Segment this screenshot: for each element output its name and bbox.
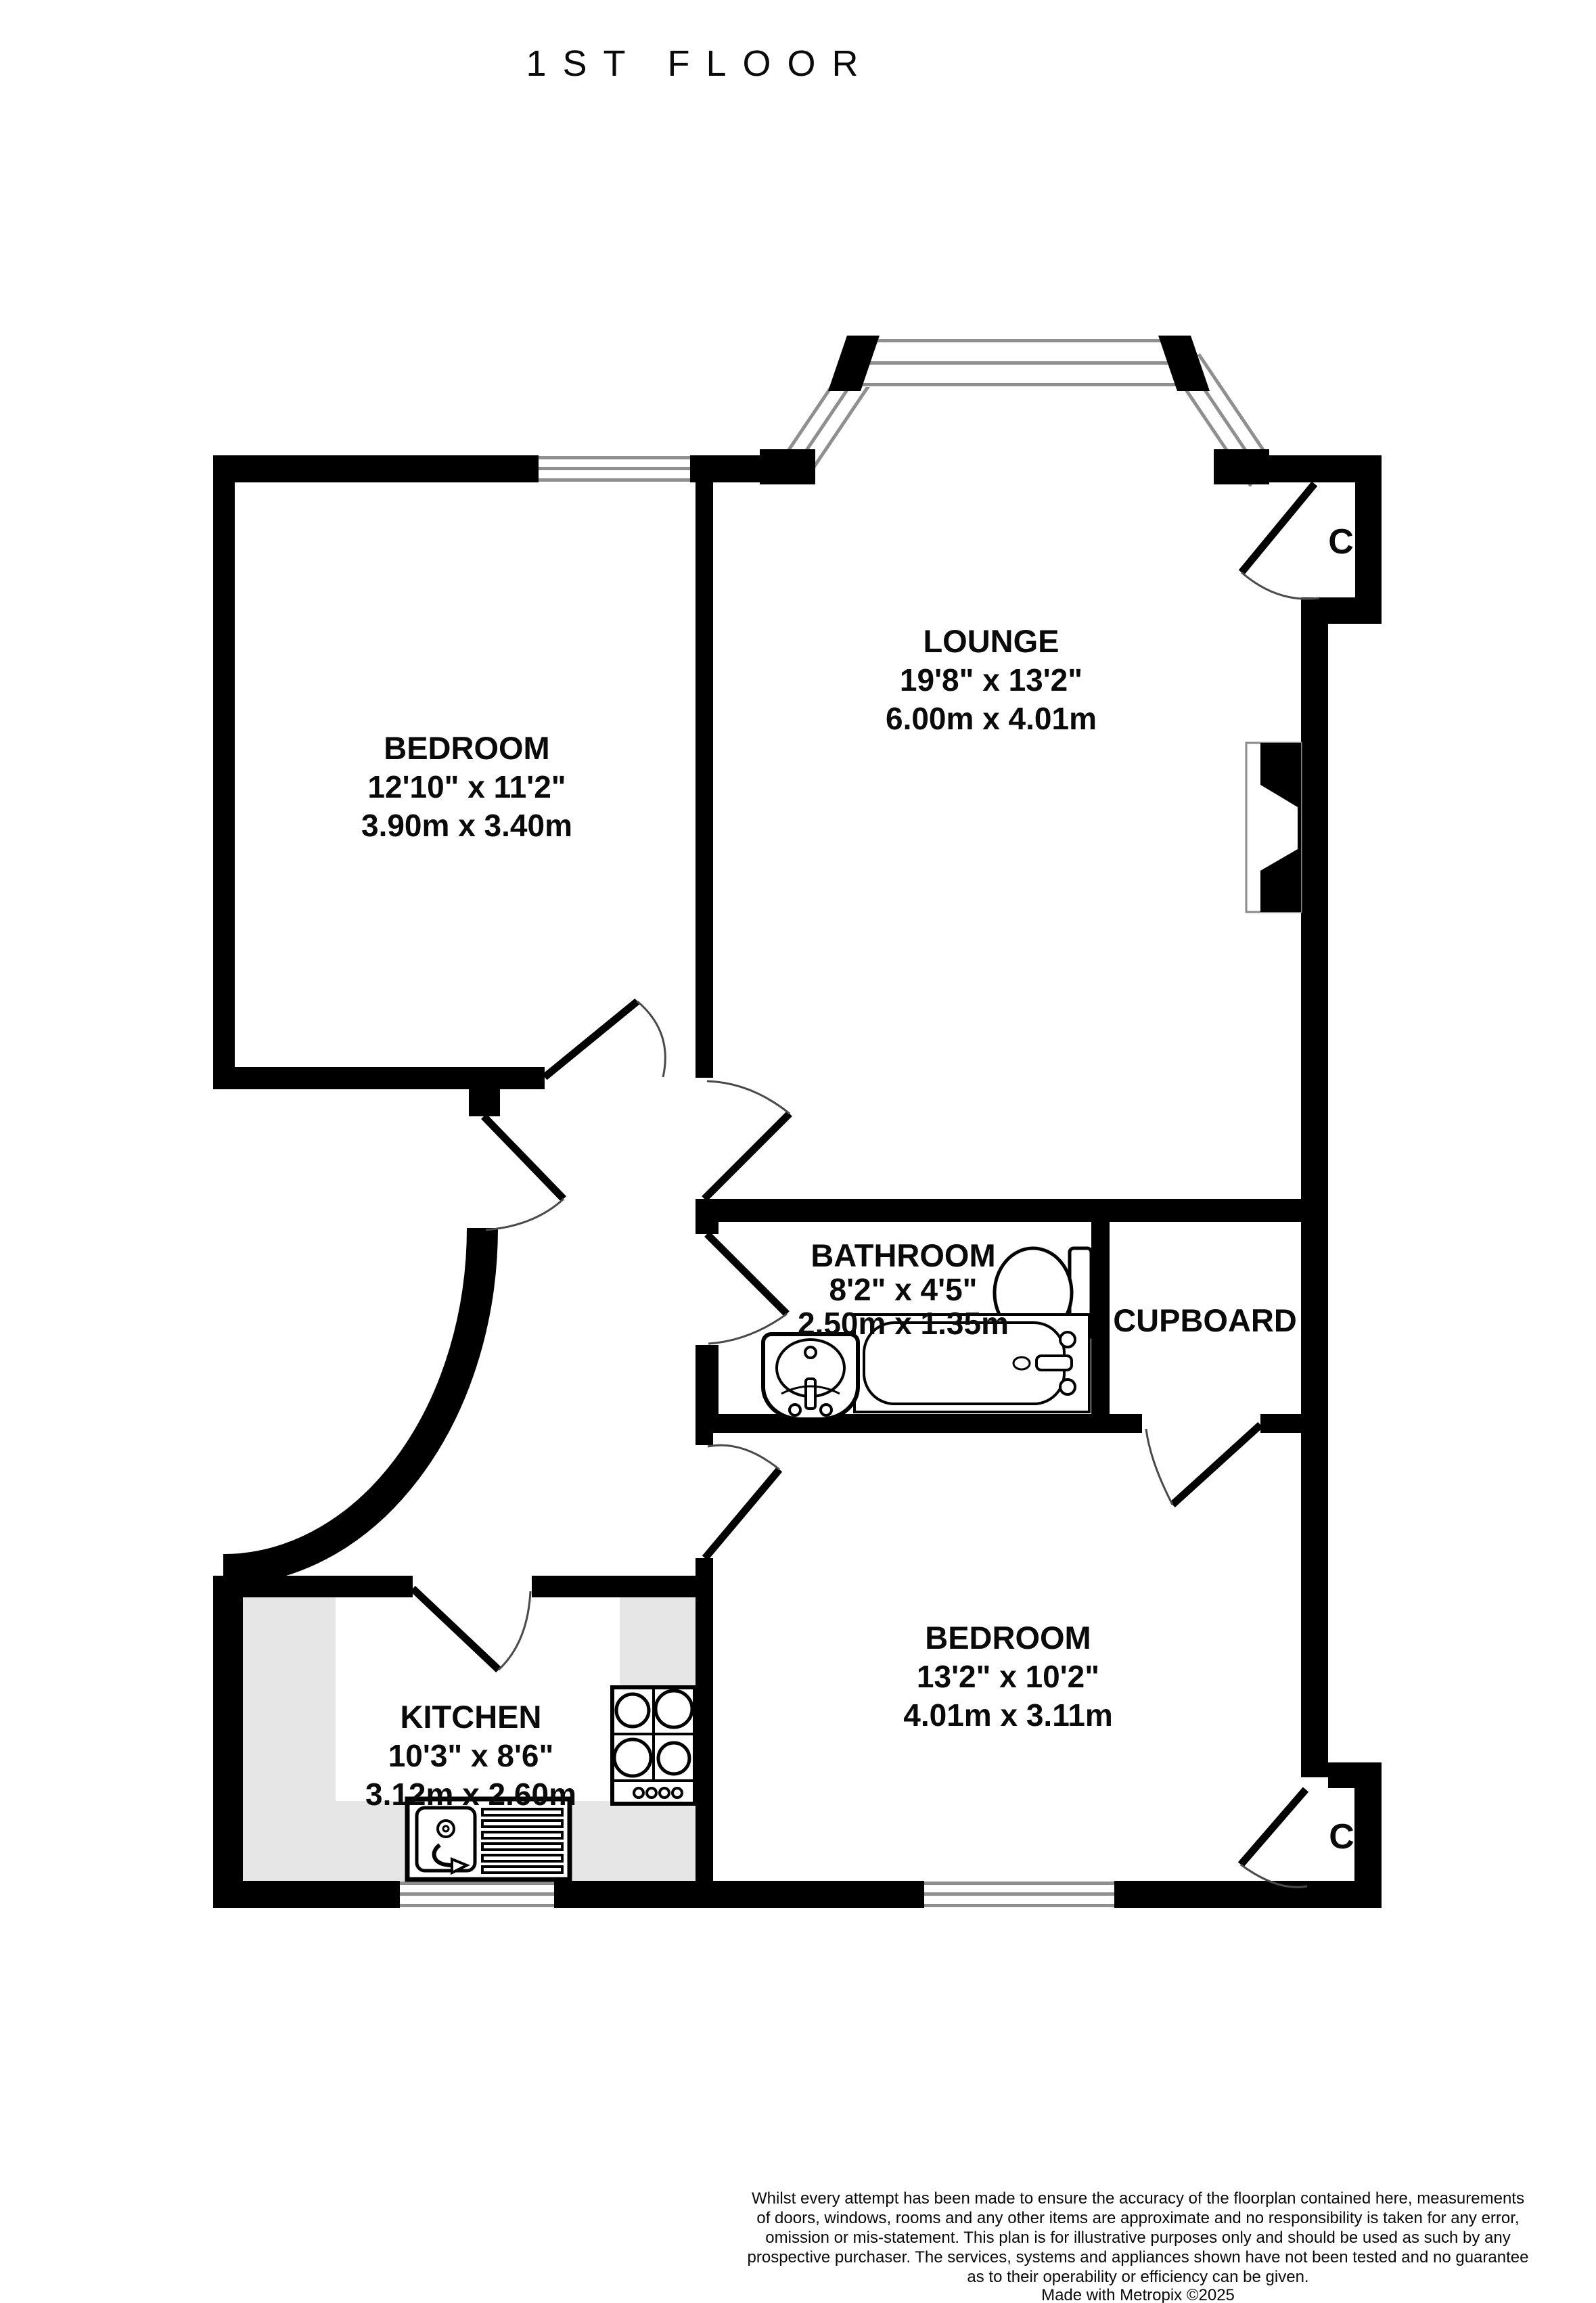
room-dims-imperial: 13'2" x 10'2" (917, 1659, 1099, 1694)
wall-kitchen-left (213, 1576, 243, 1908)
disclaimer-line: of doors, windows, rooms and any other i… (756, 2209, 1519, 2227)
wall-right (1301, 597, 1328, 1777)
hob-burner (656, 1691, 692, 1727)
lounge-label: LOUNGE 19'8" x 13'2" 6.00m x 4.01m (886, 623, 1097, 736)
wall-bathroom-bottom (696, 1414, 1142, 1433)
disclaimer-line: as to their operability or efficiency ca… (967, 2268, 1308, 2286)
bath-plug (1013, 1357, 1030, 1369)
room-dims-metric: 6.00m x 4.01m (886, 701, 1097, 736)
door-leaf (545, 1001, 637, 1077)
bath-spout (1036, 1356, 1072, 1370)
room-dims-metric: 4.01m x 3.11m (903, 1697, 1112, 1733)
door-swing-arc (486, 1199, 564, 1230)
room-dims-metric: 3.90m x 3.40m (361, 808, 572, 843)
closet-bottom-door (1241, 1789, 1307, 1887)
window-line (857, 361, 1189, 365)
door-swing-arc (707, 1081, 790, 1114)
room-dims-metric: 2.50m x 1.35m (798, 1306, 1009, 1341)
wall-bottom-right (1114, 1881, 1382, 1908)
bay-window-top-glazing (857, 339, 1189, 387)
wall-cupboard-bottom-stub (1260, 1414, 1301, 1433)
door-swing-arc (637, 1001, 665, 1077)
bathroom-door (707, 1234, 787, 1344)
wall-bedroom1-lounge-divider (696, 455, 713, 1078)
bedroom2-door (705, 1445, 779, 1558)
sink-drainer-bar (482, 1844, 562, 1850)
bedroom1-label: BEDROOM 12'10" x 11'2" 3.90m x 3.40m (361, 730, 572, 843)
basin-drain (805, 1347, 816, 1358)
hob-knob (672, 1788, 682, 1798)
door-leaf (707, 1234, 787, 1314)
sink-drainer-bar (482, 1821, 562, 1827)
hob-icon (612, 1687, 695, 1804)
sink-basin (417, 1808, 475, 1871)
window-line (539, 467, 690, 470)
wall-kitchen-bedroom2-divider (696, 1558, 713, 1881)
room-dims-metric: 3.12m x 2.60m (365, 1777, 576, 1812)
wall-bathroom-left-stub-bottom (696, 1345, 719, 1415)
wall-bottom-mid (554, 1881, 924, 1908)
bay-window (760, 336, 1277, 487)
footer-disclaimer: Whilst every attempt has been made to en… (748, 2189, 1529, 2303)
sink-drain-center (443, 1826, 449, 1831)
window-line (400, 1892, 554, 1896)
sink-drainer-bar (482, 1855, 562, 1861)
door-leaf (484, 1116, 564, 1199)
door-swing-arc (708, 1445, 779, 1469)
basin-tap-stem (806, 1379, 815, 1409)
window-line (924, 1892, 1114, 1896)
window-line (857, 339, 1189, 342)
wall-top-left (213, 455, 539, 482)
wall-bedroom2-left-stub (696, 1433, 713, 1445)
window-line (539, 478, 690, 482)
bedroom1-window (539, 455, 690, 482)
wall-bedroom1-bottom (213, 1067, 545, 1089)
basin-tap-handle (821, 1405, 831, 1415)
door-swing-arc (1146, 1429, 1172, 1505)
basin-tap-handle (790, 1405, 800, 1415)
cupboard-door (1146, 1425, 1260, 1505)
bath-tap (1060, 1379, 1075, 1394)
closet-top-door (1241, 484, 1319, 599)
room-name: KITCHEN (401, 1699, 542, 1735)
wall-lounge-bottom (696, 1199, 1328, 1222)
room-name: BEDROOM (384, 730, 549, 766)
hob-knob (660, 1788, 669, 1798)
wall-bathroom-cupboard-divider (1091, 1222, 1110, 1414)
room-name: BEDROOM (925, 1620, 1091, 1656)
door-leaf (705, 1469, 779, 1558)
window-line (924, 1904, 1114, 1907)
wall-left (213, 455, 235, 1089)
bedroom2-label: BEDROOM 13'2" x 10'2" 4.01m x 3.11m (903, 1620, 1112, 1733)
window-line (924, 1882, 1114, 1885)
sink-drainer-bar (482, 1867, 562, 1873)
room-dims-imperial: 12'10" x 11'2" (367, 769, 566, 804)
bedroom1-door (545, 1001, 665, 1077)
hall-corridor-door (484, 1116, 564, 1230)
wall-bathroom-left-stub-top (696, 1222, 719, 1234)
disclaimer-line: omission or mis-statement. This plan is … (765, 2229, 1510, 2247)
hob-burner (616, 1694, 649, 1727)
closet-bottom-label: C (1329, 1817, 1354, 1856)
door-leaf (1172, 1425, 1260, 1505)
floorplan-drawing: 1ST FLOOR BEDROOM 12'10" x 11'2" 3.90m x… (0, 0, 1596, 2303)
room-dims-imperial: 19'8" x 13'2" (900, 662, 1082, 698)
wall-hall-stub (469, 1089, 500, 1116)
window-line (857, 383, 1189, 386)
wall-kitchen-top-right (532, 1576, 696, 1597)
window-line (400, 1882, 554, 1885)
lounge-door (704, 1081, 790, 1199)
window-line (400, 1904, 554, 1907)
room-dims-imperial: 10'3" x 8'6" (388, 1738, 554, 1773)
door-leaf (1241, 1789, 1306, 1865)
page-title: 1ST FLOOR (526, 43, 874, 84)
room-name: LOUNGE (923, 623, 1059, 659)
room-dims-imperial: 8'2" x 4'5" (829, 1272, 978, 1307)
floorplan-page: 1ST FLOOR BEDROOM 12'10" x 11'2" 3.90m x… (0, 0, 1596, 2303)
hob-burner (658, 1743, 689, 1774)
door-swing-arc (1241, 572, 1319, 599)
disclaimer-line: prospective purchaser. The services, sys… (748, 2248, 1529, 2266)
chimney-breast (1246, 743, 1301, 912)
room-name: BATHROOM (811, 1237, 995, 1273)
door-leaf (1241, 484, 1315, 572)
basin-icon (763, 1334, 858, 1419)
kitchen-window (400, 1881, 554, 1908)
cupboard-label: CUPBOARD (1113, 1302, 1297, 1338)
bedroom2-window (924, 1881, 1114, 1908)
bathroom-label: BATHROOM 8'2" x 4'5" 2.50m x 1.35m (798, 1237, 1009, 1341)
hob-burner (614, 1739, 651, 1776)
closet-top-label: C (1328, 522, 1354, 562)
bath-tap (1060, 1332, 1075, 1347)
window-line (539, 456, 690, 459)
credit-line: Made with Metropix ©2025 (1041, 2286, 1235, 2303)
sink-drainer-bar (482, 1832, 562, 1838)
hob-knob (647, 1788, 656, 1798)
door-leaf (704, 1114, 790, 1199)
disclaimer-line: Whilst every attempt has been made to en… (752, 2189, 1524, 2208)
wall-hall-curved (223, 1228, 482, 1570)
hob-knob (634, 1788, 643, 1798)
